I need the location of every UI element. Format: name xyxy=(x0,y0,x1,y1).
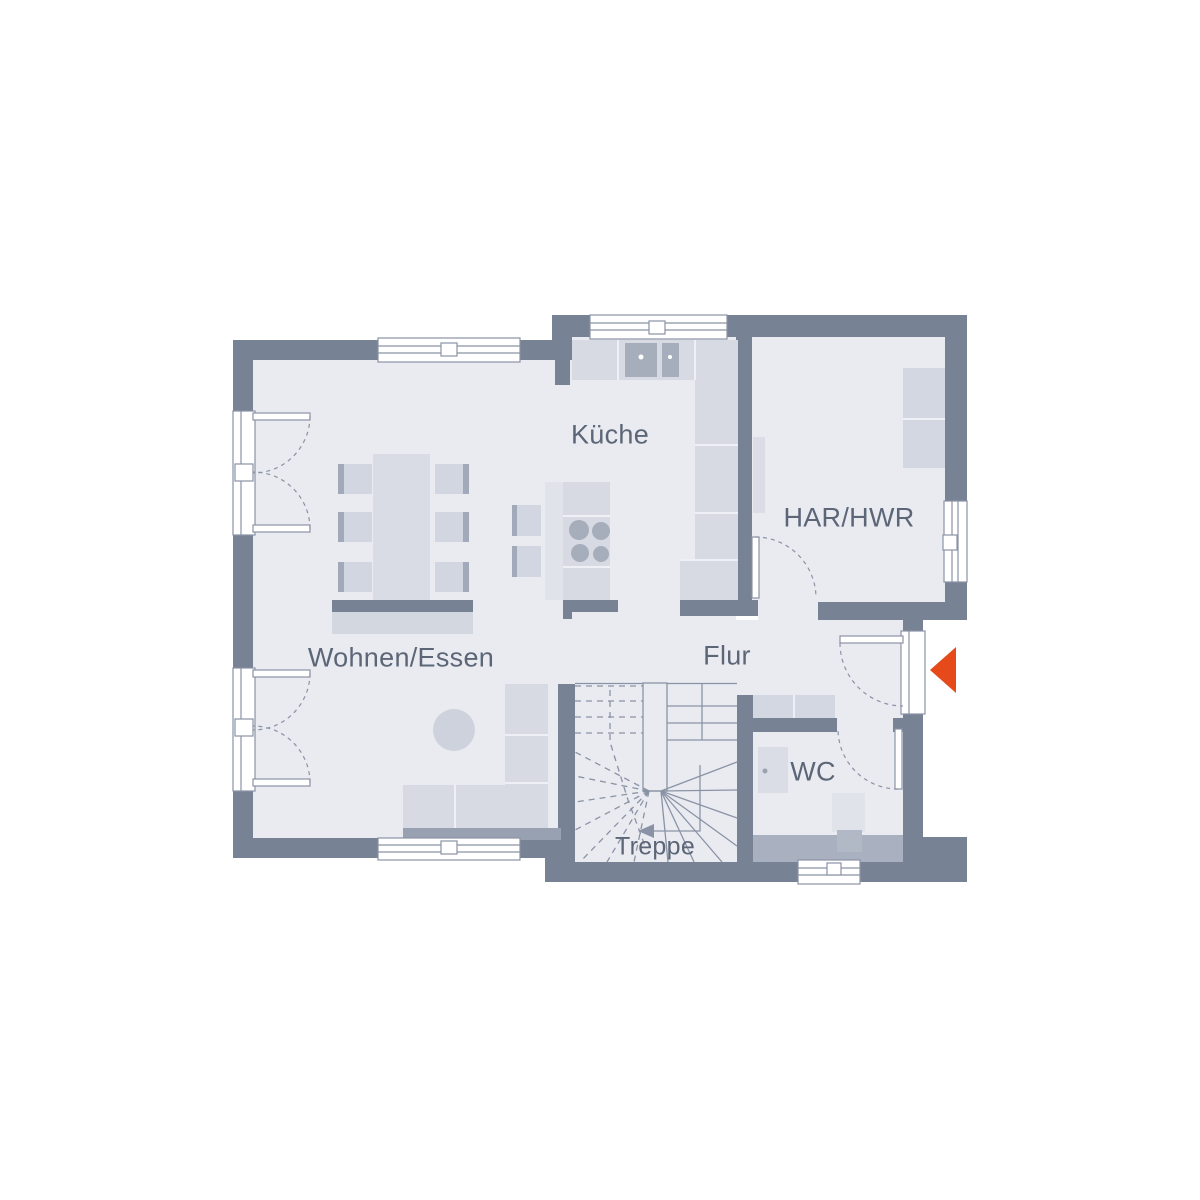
stair-center-post xyxy=(643,683,667,791)
window-bottom-living xyxy=(378,838,520,860)
wc-cistern xyxy=(837,830,862,852)
window-har-right xyxy=(943,501,967,582)
room-label-wc: WC xyxy=(790,757,836,788)
wall-entrance-below xyxy=(903,712,923,837)
wall-bench-dining xyxy=(332,600,473,612)
floorplan-drawing xyxy=(0,0,1200,1200)
wc-toilet xyxy=(832,793,865,832)
wall-top-kitchen-a xyxy=(552,315,590,337)
window-top-left xyxy=(378,338,520,362)
entrance-arrow-icon xyxy=(930,647,956,693)
floorplan-canvas: Wohnen/Essen Küche HAR/HWR Flur WC Trepp… xyxy=(0,0,1200,1200)
wall-right-har-a xyxy=(945,337,967,503)
room-label-har-hwr: HAR/HWR xyxy=(783,503,914,534)
room-label-treppe: Treppe xyxy=(615,833,695,862)
kitchen-island xyxy=(545,482,610,600)
wall-top-kitchen-b xyxy=(727,315,967,337)
floor-har-doorway xyxy=(758,602,818,620)
wall-kitchen-har xyxy=(736,337,752,602)
room-label-wohnen-essen: Wohnen/Essen xyxy=(308,643,494,674)
wall-right-har-b xyxy=(945,580,967,620)
wall-kitchen-south-stub xyxy=(680,600,758,616)
hall-wardrobe xyxy=(753,695,835,718)
coffee-table xyxy=(433,709,475,751)
wc-washbasin xyxy=(758,747,788,793)
window-wc xyxy=(798,860,860,884)
room-label-kueche: Küche xyxy=(571,420,649,451)
wall-bottom-stair-b xyxy=(858,862,903,882)
wall-kitchen-stub-left xyxy=(555,360,570,385)
wall-top-left-a xyxy=(233,340,380,360)
room-label-flur: Flur xyxy=(703,641,751,672)
kitchen-sink-large xyxy=(625,343,657,377)
dining-chairs-right xyxy=(435,464,469,592)
kitchen-sink-small xyxy=(662,343,679,377)
wall-island-stub xyxy=(563,600,618,612)
dining-chairs-left xyxy=(338,464,372,592)
har-cabinet xyxy=(753,437,765,513)
wall-wc-top xyxy=(753,718,837,732)
wall-har-bottom xyxy=(818,602,945,620)
wall-bottom-stair-a xyxy=(545,862,800,882)
window-kitchen xyxy=(590,315,727,339)
wc-plinth xyxy=(753,835,903,862)
dining-bench xyxy=(332,612,473,634)
wall-bottom-living-a xyxy=(233,838,380,858)
wall-corner-bottom-right xyxy=(903,837,967,882)
wall-stair-wc xyxy=(737,695,753,882)
dining-table xyxy=(373,454,430,600)
wall-island-stub-foot xyxy=(563,612,572,619)
